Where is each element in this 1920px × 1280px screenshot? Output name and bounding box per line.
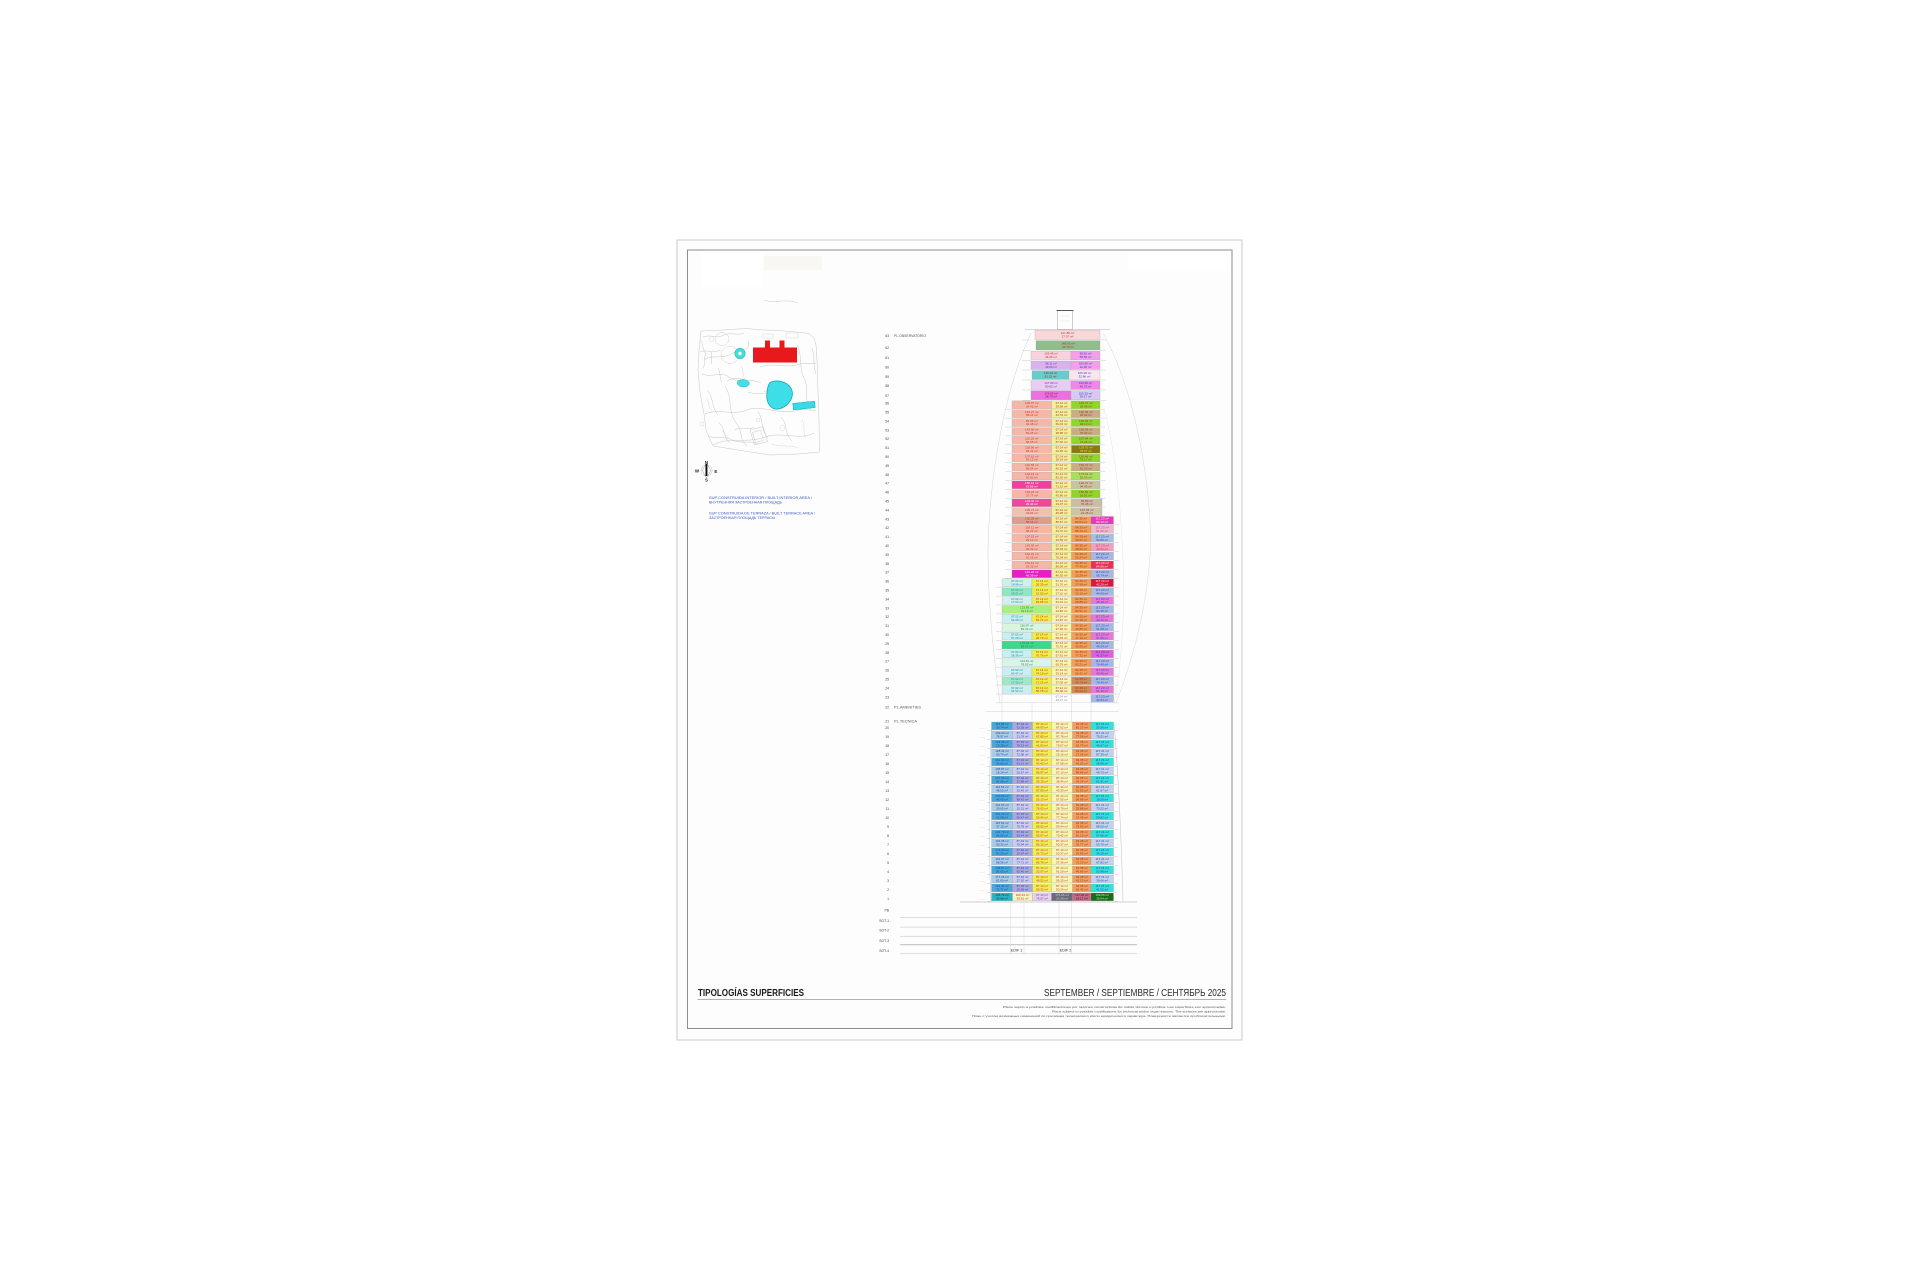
svg-text:PL.TECNICA: PL.TECNICA: [894, 719, 918, 723]
svg-text:67.14 m²20.39 m²: 67.14 m²20.39 m²: [1036, 579, 1048, 586]
svg-text:27: 27: [885, 660, 889, 664]
svg-text:150.50 m²16.81 m²: 150.50 m²16.81 m²: [1079, 490, 1093, 497]
svg-text:67.14 m²70.24 m²: 67.14 m²70.24 m²: [1056, 552, 1068, 559]
svg-text:117.04 m²18.17 m²: 117.04 m²18.17 m²: [1075, 893, 1088, 900]
svg-text:SOT-1: SOT-1: [879, 919, 889, 923]
svg-text:3: 3: [887, 879, 889, 883]
svg-text:EDIF 1: EDIF 1: [1011, 948, 1023, 952]
svg-text:87.14 m²24.73 m²: 87.14 m²24.73 m²: [1036, 848, 1048, 855]
svg-text:SOT-2: SOT-2: [879, 929, 889, 933]
svg-text:67.14 m²24.37 m²: 67.14 m²24.37 m²: [1056, 499, 1068, 506]
svg-text:67.14 m²58.45 m²: 67.14 m²58.45 m²: [1056, 632, 1068, 639]
svg-text:56: 56: [885, 402, 889, 406]
svg-text:94.35 m²23.28 m²: 94.35 m²23.28 m²: [1075, 570, 1087, 577]
svg-text:117.21 m²49.70 m²: 117.21 m²49.70 m²: [1096, 767, 1109, 774]
svg-text:129.70 m²75.57 m²: 129.70 m²75.57 m²: [1079, 445, 1093, 452]
svg-text:132.28 m²58.96 m²: 132.28 m²58.96 m²: [1025, 517, 1039, 524]
svg-text:176.03 m²18.73 m²: 176.03 m²18.73 m²: [1044, 391, 1058, 398]
svg-text:45: 45: [885, 500, 889, 504]
svg-text:117.23 m²65.74 m²: 117.23 m²65.74 m²: [1096, 570, 1109, 577]
svg-text:46: 46: [885, 491, 889, 495]
svg-text:52: 52: [885, 437, 889, 441]
svg-text:87.14 m²87.02 m²: 87.14 m²87.02 m²: [1056, 722, 1068, 729]
svg-text:SEPTEMBER / SEPTIEMBRE / СЕНТЯ: SEPTEMBER / SEPTIEMBRE / СЕНТЯБРЬ 2025: [1044, 988, 1226, 999]
svg-text:67.14 m²78.07 m²: 67.14 m²78.07 m²: [1036, 893, 1048, 900]
svg-text:99.81 m²55.59 m²: 99.81 m²55.59 m²: [1080, 352, 1092, 359]
svg-text:97.02 m²52.28 m²: 97.02 m²52.28 m²: [1011, 615, 1023, 622]
svg-text:67.14 m²71.12 m²: 67.14 m²71.12 m²: [1056, 481, 1068, 488]
svg-text:14: 14: [885, 780, 889, 784]
svg-text:87.14 m²79.07 m²: 87.14 m²79.07 m²: [1056, 740, 1068, 747]
svg-text:16: 16: [885, 762, 889, 766]
svg-text:117.21 m²58.89 m²: 117.21 m²58.89 m²: [1096, 758, 1109, 765]
svg-text:173.41 m²52.93 m²: 173.41 m²52.93 m²: [1079, 472, 1093, 479]
svg-text:39: 39: [885, 553, 889, 557]
svg-text:87.14 m²59.32 m²: 87.14 m²59.32 m²: [1036, 884, 1048, 891]
svg-text:87.14 m²43.30 m²: 87.14 m²43.30 m²: [1056, 785, 1068, 792]
svg-text:67.14 m²57.02 m²: 67.14 m²57.02 m²: [1056, 437, 1068, 444]
svg-text:117.21 m²73.02 m²: 117.21 m²73.02 m²: [1096, 803, 1109, 810]
svg-text:53: 53: [885, 428, 889, 432]
svg-text:87.34 m²31.88 m²: 87.34 m²31.88 m²: [1017, 776, 1029, 783]
svg-text:87.14 m²27.36 m²: 87.14 m²27.36 m²: [1056, 857, 1068, 864]
svg-text:61: 61: [885, 356, 889, 360]
svg-text:94.35 m²56.24 m²: 94.35 m²56.24 m²: [1075, 552, 1087, 559]
svg-text:150.46 m²76.17 m²: 150.46 m²76.17 m²: [1079, 454, 1093, 461]
svg-text:105.28 m²32.86 m²: 105.28 m²32.86 m²: [1078, 371, 1092, 378]
svg-text:87.14 m²38.44 m²: 87.14 m²38.44 m²: [1056, 776, 1068, 783]
svg-text:67.14 m²18.14 m²: 67.14 m²18.14 m²: [1056, 454, 1068, 461]
svg-text:87.14 m²66.97 m²: 87.14 m²66.97 m²: [1036, 767, 1048, 774]
svg-text:11: 11: [885, 807, 889, 811]
svg-text:141.19 m²41.08 m²: 141.19 m²41.08 m²: [995, 812, 1009, 819]
svg-text:98.11 m²49.69 m²: 98.11 m²49.69 m²: [1045, 361, 1057, 368]
svg-text:173.29 m²82.20 m²: 173.29 m²82.20 m²: [995, 848, 1009, 855]
svg-text:117.21 m²53.98 m²: 117.21 m²53.98 m²: [1096, 866, 1109, 873]
svg-text:97.02 m²80.47 m²: 97.02 m²80.47 m²: [1011, 668, 1023, 675]
svg-text:130.49 m²40.13 m²: 130.49 m²40.13 m²: [1079, 419, 1093, 426]
svg-text:106.87 m²85.63 m²: 106.87 m²85.63 m²: [995, 866, 1009, 873]
svg-text:133.32 m²28.44 m²: 133.32 m²28.44 m²: [1025, 499, 1039, 506]
svg-text:87.14 m²49.52 m²: 87.14 m²49.52 m²: [1036, 875, 1048, 882]
svg-text:23: 23: [885, 695, 889, 699]
svg-text:67.14 m²39.68 m²: 67.14 m²39.68 m²: [1056, 401, 1068, 408]
svg-text:67.14 m²31.70 m²: 67.14 m²31.70 m²: [1056, 579, 1068, 586]
svg-text:55: 55: [885, 411, 889, 415]
svg-text:67.14 m²89.96 m²: 67.14 m²89.96 m²: [1056, 686, 1068, 693]
svg-text:97.02 m²91.52 m²: 97.02 m²91.52 m²: [1011, 686, 1023, 693]
svg-text:E: E: [714, 469, 717, 474]
svg-text:87.14 m²41.60 m²: 87.14 m²41.60 m²: [1036, 740, 1048, 747]
svg-text:87.14 m²50.37 m²: 87.14 m²50.37 m²: [1056, 848, 1068, 855]
svg-text:7: 7: [887, 843, 889, 847]
svg-text:146.79 m²55.98 m²: 146.79 m²55.98 m²: [995, 893, 1009, 900]
svg-text:142.56 m²85.04 m²: 142.56 m²85.04 m²: [1025, 463, 1039, 470]
svg-text:67.14 m²27.92 m²: 67.14 m²27.92 m²: [1056, 624, 1068, 631]
svg-text:63: 63: [885, 334, 889, 338]
svg-text:87.14 m²90.37 m²: 87.14 m²90.37 m²: [1056, 839, 1068, 846]
svg-text:87.14 m²55.13 m²: 87.14 m²55.13 m²: [1036, 794, 1048, 801]
svg-text:87.34 m²78.13 m²: 87.34 m²78.13 m²: [1017, 740, 1029, 747]
svg-text:67.14 m²33.56 m²: 67.14 m²33.56 m²: [1056, 535, 1068, 542]
svg-text:47: 47: [885, 482, 889, 486]
svg-text:167.33 m²21.45 m²: 167.33 m²21.45 m²: [1080, 508, 1094, 515]
svg-text:67.14 m²15.02 m²: 67.14 m²15.02 m²: [1036, 588, 1048, 595]
svg-text:67.14 m²37.35 m²: 67.14 m²37.35 m²: [1056, 677, 1068, 684]
svg-text:43: 43: [885, 517, 889, 521]
svg-text:94.35 m²77.32 m²: 94.35 m²77.32 m²: [1075, 650, 1087, 657]
svg-text:100.80 m²22.26 m²: 100.80 m²22.26 m²: [1079, 361, 1093, 368]
svg-text:20: 20: [885, 726, 889, 730]
svg-text:117.21 m²61.91 m²: 117.21 m²61.91 m²: [1096, 776, 1109, 783]
svg-text:117.23 m²42.41 m²: 117.23 m²42.41 m²: [1096, 615, 1109, 622]
svg-text:113.51 m²79.92 m²: 113.51 m²79.92 m²: [1020, 659, 1033, 666]
svg-text:87.14 m²59.44 m²: 87.14 m²59.44 m²: [1036, 812, 1048, 819]
svg-text:87.34 m²16.56 m²: 87.34 m²16.56 m²: [1017, 884, 1029, 891]
svg-text:67.14 m²27.10 m²: 67.14 m²27.10 m²: [1056, 588, 1068, 595]
svg-text:87.34 m²25.97 m²: 87.34 m²25.97 m²: [1017, 848, 1029, 855]
svg-text:94.38 m²16.45 m²: 94.38 m²16.45 m²: [1076, 884, 1088, 891]
svg-text:150.12 m²19.85 m²: 150.12 m²19.85 m²: [1025, 481, 1039, 488]
svg-text:123.83 m²44.13 m²: 123.83 m²44.13 m²: [1020, 606, 1034, 613]
svg-text:117.23 m²91.62 m²: 117.23 m²91.62 m²: [1096, 526, 1109, 533]
svg-text:87.34 m²25.49 m²: 87.34 m²25.49 m²: [1017, 785, 1029, 792]
svg-text:87.34 m²81.12 m²: 87.34 m²81.12 m²: [1017, 758, 1029, 765]
svg-text:97.02 m²17.32 m²: 97.02 m²17.32 m²: [1011, 677, 1023, 684]
svg-text:60: 60: [885, 366, 889, 370]
svg-text:22: 22: [885, 705, 889, 709]
svg-text:94.38 m²43.03 m²: 94.38 m²43.03 m²: [1076, 758, 1088, 765]
svg-text:117.23 m²91.08 m²: 117.23 m²91.08 m²: [1096, 624, 1109, 631]
svg-text:87.34 m²77.71 m²: 87.34 m²77.71 m²: [1017, 857, 1029, 864]
svg-text:94.38 m²75.80 m²: 94.38 m²75.80 m²: [1076, 821, 1088, 828]
svg-text:131.53 m²29.65 m²: 131.53 m²29.65 m²: [995, 803, 1009, 810]
svg-text:34: 34: [885, 597, 889, 601]
svg-text:117.21 m²59.76 m²: 117.21 m²59.76 m²: [1096, 839, 1109, 846]
svg-text:67.14 m²85.67 m²: 67.14 m²85.67 m²: [1056, 517, 1068, 524]
svg-text:117.21 m²59.82 m²: 117.21 m²59.82 m²: [1096, 812, 1109, 819]
svg-text:159.66 m²36.64 m²: 159.66 m²36.64 m²: [1095, 893, 1109, 900]
svg-text:143.90 m²36.02 m²: 143.90 m²36.02 m²: [1025, 543, 1039, 550]
svg-text:67.14 m²45.86 m²: 67.14 m²45.86 m²: [1056, 490, 1068, 497]
svg-text:94.38 m²92.73 m²: 94.38 m²92.73 m²: [1076, 740, 1088, 747]
svg-text:97.02 m²19.98 m²: 97.02 m²19.98 m²: [1011, 579, 1023, 586]
svg-text:121.44 m²72.77 m²: 121.44 m²72.77 m²: [995, 884, 1009, 891]
svg-text:152.71 m²62.55 m²: 152.71 m²62.55 m²: [1079, 463, 1093, 470]
svg-text:87.14 m²87.80 m²: 87.14 m²87.80 m²: [1036, 785, 1048, 792]
svg-text:SOT-4: SOT-4: [879, 949, 889, 953]
svg-text:94.38 m²35.77 m²: 94.38 m²35.77 m²: [1076, 839, 1088, 846]
svg-text:42: 42: [885, 526, 889, 530]
svg-text:143.13 m²51.50 m²: 143.13 m²51.50 m²: [1025, 472, 1039, 479]
svg-text:87.34 m²27.92 m²: 87.34 m²27.92 m²: [1017, 875, 1029, 882]
svg-text:170.06 m²48.65 m²: 170.06 m²48.65 m²: [995, 794, 1009, 801]
svg-text:2: 2: [887, 888, 889, 892]
svg-text:Plans subject to possible modi: Plans subject to possible modifications …: [1052, 1010, 1226, 1014]
svg-text:94.38 m²42.13 m²: 94.38 m²42.13 m²: [1076, 875, 1088, 882]
svg-text:67.14 m²64.13 m²: 67.14 m²64.13 m²: [1056, 597, 1068, 604]
svg-text:87.14 m²57.13 m²: 87.14 m²57.13 m²: [1056, 767, 1068, 774]
svg-text:94.38 m²34.24 m²: 94.38 m²34.24 m²: [1076, 776, 1088, 783]
svg-text:67.14 m²46.28 m²: 67.14 m²46.28 m²: [1056, 508, 1068, 515]
svg-text:12: 12: [885, 798, 889, 802]
svg-text:87.14 m²77.74 m²: 87.14 m²77.74 m²: [1056, 812, 1068, 819]
svg-text:107.53 m²29.10 m²: 107.53 m²29.10 m²: [1025, 535, 1039, 542]
svg-text:94.38 m²89.69 m²: 94.38 m²89.69 m²: [1076, 767, 1088, 774]
svg-text:37: 37: [885, 571, 889, 575]
svg-text:87.14 m²35.15 m²: 87.14 m²35.15 m²: [1036, 776, 1048, 783]
svg-text:117.21 m²41.52 m²: 117.21 m²41.52 m²: [1096, 884, 1109, 891]
svg-text:41: 41: [885, 535, 889, 539]
svg-text:148.71 m²94.45 m²: 148.71 m²94.45 m²: [1079, 481, 1093, 488]
svg-text:87.34 m²92.40 m²: 87.34 m²92.40 m²: [1017, 866, 1029, 873]
svg-text:117.23 m²57.25 m²: 117.23 m²57.25 m²: [1096, 632, 1109, 639]
svg-text:44: 44: [885, 508, 889, 512]
svg-text:67.14 m²53.71 m²: 67.14 m²53.71 m²: [1036, 615, 1048, 622]
svg-text:117.21 m²46.67 m²: 117.21 m²46.67 m²: [1096, 740, 1109, 747]
svg-text:87.34 m²21.78 m²: 87.34 m²21.78 m²: [1017, 731, 1029, 738]
svg-text:87.14 m²86.76 m²: 87.14 m²86.76 m²: [1036, 857, 1048, 864]
svg-text:94.35 m²35.89 m²: 94.35 m²35.89 m²: [1075, 641, 1087, 648]
svg-text:94.35 m²16.85 m²: 94.35 m²16.85 m²: [1075, 624, 1087, 631]
svg-text:EDIF 2: EDIF 2: [1060, 948, 1072, 952]
svg-text:13: 13: [885, 789, 889, 793]
svg-text:87.14 m²25.16 m²: 87.14 m²25.16 m²: [1056, 749, 1068, 756]
svg-text:117.23 m²32.64 m²: 117.23 m²32.64 m²: [1096, 695, 1109, 702]
svg-text:94.38 m²20.80 m²: 94.38 m²20.80 m²: [1076, 848, 1088, 855]
svg-text:161.94 m²26.69 m²: 161.94 m²26.69 m²: [995, 758, 1009, 765]
svg-text:117.21 m²88.00 m²: 117.21 m²88.00 m²: [1096, 821, 1109, 828]
svg-text:87.14 m²28.60 m²: 87.14 m²28.60 m²: [1036, 749, 1048, 756]
svg-text:118.11 m²48.22 m²: 118.11 m²48.22 m²: [1025, 526, 1038, 533]
svg-text:151.12 m²19.32 m²: 151.12 m²19.32 m²: [1025, 561, 1039, 568]
svg-text:87.34 m²92.67 m²: 87.34 m²92.67 m²: [1017, 767, 1029, 774]
svg-text:131.79 m²64.00 m²: 131.79 m²64.00 m²: [995, 830, 1009, 837]
svg-text:87.14 m²78.93 m²: 87.14 m²78.93 m²: [1036, 803, 1048, 810]
svg-text:67.14 m²69.43 m²: 67.14 m²69.43 m²: [1056, 419, 1068, 426]
svg-text:87.34 m²56.47 m²: 87.34 m²56.47 m²: [1017, 812, 1029, 819]
svg-text:117.23 m²84.12 m²: 117.23 m²84.12 m²: [1096, 517, 1109, 524]
svg-text:167.35 m²81.09 m²: 167.35 m²81.09 m²: [995, 776, 1009, 783]
svg-text:94.38 m²56.88 m²: 94.38 m²56.88 m²: [1076, 794, 1088, 801]
svg-text:117.23 m²64.41 m²: 117.23 m²64.41 m²: [1096, 552, 1109, 559]
svg-text:117.23 m²94.45 m²: 117.23 m²94.45 m²: [1096, 606, 1109, 613]
svg-text:161.22 m²46.39 m²: 161.22 m²46.39 m²: [1025, 570, 1039, 577]
svg-text:67.14 m²24.45 m²: 67.14 m²24.45 m²: [1056, 445, 1068, 452]
svg-text:117.23 m²44.09 m²: 117.23 m²44.09 m²: [1096, 588, 1109, 595]
svg-text:94.35 m²94.04 m²: 94.35 m²94.04 m²: [1075, 686, 1087, 693]
svg-text:117.23 m²41.37 m²: 117.23 m²41.37 m²: [1096, 650, 1109, 657]
svg-text:10: 10: [885, 816, 889, 820]
svg-text:117.23 m²43.45 m²: 117.23 m²43.45 m²: [1096, 668, 1109, 675]
svg-text:PL.OBSERVATORIO: PL.OBSERVATORIO: [894, 334, 926, 338]
svg-text:94.35 m²48.52 m²: 94.35 m²48.52 m²: [1075, 543, 1087, 550]
svg-text:94.35 m²35.73 m²: 94.35 m²35.73 m²: [1075, 677, 1087, 684]
svg-text:67.14 m²44.17 m²: 67.14 m²44.17 m²: [1056, 695, 1068, 702]
svg-text:67.14 m²38.98 m²: 67.14 m²38.98 m²: [1056, 428, 1068, 435]
svg-text:87.34 m²55.44 m²: 87.34 m²55.44 m²: [1017, 830, 1029, 837]
svg-text:SUP CONSTRUIDA INTERIOR / BUIL: SUP CONSTRUIDA INTERIOR / BUILT INTERIOR…: [709, 496, 812, 500]
svg-text:143.60 m²51.25 m²: 143.60 m²51.25 m²: [1025, 428, 1039, 435]
svg-text:94.35 m²26.88 m²: 94.35 m²26.88 m²: [1075, 597, 1087, 604]
svg-text:175.65 m²23.38 m²: 175.65 m²23.38 m²: [1055, 893, 1069, 900]
svg-text:SUP CONSTRUIDA DE TERRAZA / BU: SUP CONSTRUIDA DE TERRAZA / BUILT TERRAC…: [709, 512, 815, 516]
svg-text:18: 18: [885, 744, 889, 748]
svg-text:94.35 m²17.16 m²: 94.35 m²17.16 m²: [1075, 632, 1087, 639]
svg-text:134.68 m²29.28 m²: 134.68 m²29.28 m²: [995, 740, 1009, 747]
svg-text:94.38 m²72.29 m²: 94.38 m²72.29 m²: [1076, 857, 1088, 864]
svg-text:147.08 m²90.82 m²: 147.08 m²90.82 m²: [1044, 381, 1058, 388]
svg-text:97.02 m²17.04 m²: 97.02 m²17.04 m²: [1011, 597, 1023, 604]
svg-text:29: 29: [885, 642, 889, 646]
svg-text:163.22 m²37.77 m²: 163.22 m²37.77 m²: [1025, 490, 1039, 497]
svg-text:115.63 m²37.15 m²: 115.63 m²37.15 m²: [995, 821, 1008, 828]
svg-text:139.48 m²44.26 m²: 139.48 m²44.26 m²: [1044, 352, 1058, 359]
svg-text:87.14 m²55.97 m²: 87.14 m²55.97 m²: [1036, 830, 1048, 837]
svg-text:21: 21: [885, 719, 889, 723]
svg-text:117.23 m²79.49 m²: 117.23 m²79.49 m²: [1096, 659, 1109, 666]
svg-text:35: 35: [885, 589, 889, 593]
svg-text:67.14 m²50.78 m²: 67.14 m²50.78 m²: [1036, 686, 1048, 693]
svg-text:67.14 m²17.23 m²: 67.14 m²17.23 m²: [1036, 677, 1048, 684]
svg-text:160.93 m²70.92 m²: 160.93 m²70.92 m²: [1079, 428, 1093, 435]
svg-text:117.23 m²44.34 m²: 117.23 m²44.34 m²: [1096, 641, 1109, 648]
svg-text:PB: PB: [884, 909, 889, 913]
svg-text:94.35 m²23.18 m²: 94.35 m²23.18 m²: [1075, 615, 1087, 622]
svg-text:87.14 m²55.62 m²: 87.14 m²55.62 m²: [1036, 821, 1048, 828]
svg-text:140.46 m²20.02 m²: 140.46 m²20.02 m²: [1079, 410, 1093, 417]
svg-text:94.35 m²82.91 m²: 94.35 m²82.91 m²: [1075, 606, 1087, 613]
svg-text:87.14 m²87.78 m²: 87.14 m²87.78 m²: [1056, 731, 1068, 738]
svg-text:87.34 m²76.78 m²: 87.34 m²76.78 m²: [1017, 821, 1029, 828]
svg-text:134.68 m²90.32 m²: 134.68 m²90.32 m²: [995, 839, 1009, 846]
svg-text:17: 17: [885, 753, 889, 757]
svg-text:87.14 m²57.55 m²: 87.14 m²57.55 m²: [1056, 794, 1068, 801]
svg-text:87.14 m²32.57 m²: 87.14 m²32.57 m²: [1036, 866, 1048, 873]
svg-text:1: 1: [887, 897, 889, 901]
svg-text:67.14 m²84.95 m²: 67.14 m²84.95 m²: [1036, 597, 1048, 604]
svg-text:128.32 m²90.74 m²: 128.32 m²90.74 m²: [995, 749, 1009, 756]
svg-text:143.27 m²66.11 m²: 143.27 m²66.11 m²: [1025, 410, 1039, 417]
svg-text:167.64 m²73.36 m²: 167.64 m²73.36 m²: [1079, 437, 1093, 444]
svg-text:121.88 m²27.07 m²: 121.88 m²27.07 m²: [1061, 331, 1075, 338]
svg-text:116.53 m²48.52 m²: 116.53 m²48.52 m²: [995, 785, 1008, 792]
svg-text:67.14 m²43.70 m²: 67.14 m²43.70 m²: [1056, 526, 1068, 533]
svg-text:101.07 m²68.56 m²: 101.07 m²68.56 m²: [995, 857, 1009, 864]
svg-text:99.95 m²31.48 m²: 99.95 m²31.48 m²: [1026, 419, 1038, 426]
svg-text:106.97 m²24.42 m²: 106.97 m²24.42 m²: [1025, 401, 1039, 408]
svg-text:94.35 m²77.40 m²: 94.35 m²77.40 m²: [1075, 561, 1087, 568]
svg-text:57: 57: [885, 394, 889, 398]
svg-text:38: 38: [885, 562, 889, 566]
svg-text:117.23 m²42.20 m²: 117.23 m²42.20 m²: [1096, 579, 1109, 586]
svg-text:117.21 m²57.66 m²: 117.21 m²57.66 m²: [1096, 830, 1109, 837]
svg-text:117.21 m²87.39 m²: 117.21 m²87.39 m²: [1096, 749, 1109, 756]
svg-text:25: 25: [885, 678, 889, 682]
svg-text:87.14 m²28.79 m²: 87.14 m²28.79 m²: [1056, 803, 1068, 810]
svg-text:94.38 m²27.09 m²: 94.38 m²27.09 m²: [1076, 749, 1088, 756]
svg-text:94.38 m²51.19 m²: 94.38 m²51.19 m²: [1076, 830, 1088, 837]
svg-text:87.14 m²56.25 m²: 87.14 m²56.25 m²: [1056, 875, 1068, 882]
svg-text:117.23 m²53.80 m²: 117.23 m²53.80 m²: [1096, 535, 1109, 542]
svg-text:36: 36: [885, 580, 889, 584]
svg-text:54: 54: [885, 419, 889, 423]
svg-text:58: 58: [885, 384, 889, 388]
svg-text:118.90 m²93.41 m²: 118.90 m²93.41 m²: [1025, 445, 1038, 452]
svg-text:94.35 m²23.12 m²: 94.35 m²23.12 m²: [1075, 588, 1087, 595]
svg-text:117.21 m²61.67 m²: 117.21 m²61.67 m²: [1096, 785, 1109, 792]
svg-text:117.21 m²53.36 m²: 117.21 m²53.36 m²: [1096, 722, 1109, 729]
svg-text:67.14 m²15.33 m²: 67.14 m²15.33 m²: [1056, 543, 1068, 550]
svg-text:40: 40: [885, 544, 889, 548]
svg-text:87.34 m²15.31 m²: 87.34 m²15.31 m²: [1017, 803, 1029, 810]
svg-text:87.14 m²64.93 m²: 87.14 m²64.93 m²: [1036, 722, 1048, 729]
svg-text:28: 28: [885, 651, 889, 655]
svg-text:5: 5: [887, 861, 889, 865]
svg-text:117.21 m²16.50 m²: 117.21 m²16.50 m²: [1096, 794, 1109, 801]
svg-text:87.14 m²91.20 m²: 87.14 m²91.20 m²: [1056, 866, 1068, 873]
svg-text:94.38 m²23.49 m²: 94.38 m²23.49 m²: [1076, 812, 1088, 819]
svg-text:149.20 m²78.97 m²: 149.20 m²78.97 m²: [995, 731, 1009, 738]
svg-text:30: 30: [885, 633, 889, 637]
svg-text:94.38 m²51.65 m²: 94.38 m²51.65 m²: [1076, 785, 1088, 792]
svg-text:26: 26: [885, 669, 889, 673]
svg-text:67.14 m²70.70 m²: 67.14 m²70.70 m²: [1056, 641, 1068, 648]
svg-text:9: 9: [887, 825, 889, 829]
svg-text:87.14 m²50.24 m²: 87.14 m²50.24 m²: [1056, 884, 1068, 891]
svg-text:87.14 m²70.42 m²: 87.14 m²70.42 m²: [1056, 830, 1068, 837]
svg-text:117.21 m²34.25 m²: 117.21 m²34.25 m²: [1096, 848, 1109, 855]
svg-text:67.14 m²26.73 m²: 67.14 m²26.73 m²: [1036, 632, 1048, 639]
svg-text:99.89 m²76.46 m²: 99.89 m²76.46 m²: [1081, 499, 1093, 506]
svg-text:87.14 m²59.94 m²: 87.14 m²59.94 m²: [1056, 821, 1068, 828]
svg-text:87.14 m²85.12 m²: 87.14 m²85.12 m²: [1036, 839, 1048, 846]
svg-text:TIPOLOGÍAS SUPERFICIES: TIPOLOGÍAS SUPERFICIES: [698, 986, 804, 999]
svg-text:4: 4: [887, 870, 889, 874]
svg-text:115.26 m²60.95 m²: 115.26 m²60.95 m²: [1025, 437, 1038, 444]
svg-text:67.14 m²21.87 m²: 67.14 m²21.87 m²: [1056, 615, 1068, 622]
svg-text:67.14 m²93.79 m²: 67.14 m²93.79 m²: [1056, 659, 1068, 666]
svg-text:50: 50: [885, 455, 889, 459]
svg-text:Plano sujeto a posibles modifi: Plano sujeto a posibles modificaciones p…: [1003, 1005, 1226, 1009]
svg-text:67.14 m²86.96 m²: 67.14 m²86.96 m²: [1056, 561, 1068, 568]
svg-text:94.35 m²80.54 m²: 94.35 m²80.54 m²: [1075, 517, 1087, 524]
svg-text:94.38 m²46.86 m²: 94.38 m²46.86 m²: [1076, 866, 1088, 873]
svg-text:67.14 m²76.76 m²: 67.14 m²76.76 m²: [1036, 650, 1048, 657]
svg-text:117.23 m²84.96 m²: 117.23 m²84.96 m²: [1096, 561, 1109, 568]
svg-text:162.74 m²29.46 m²: 162.74 m²29.46 m²: [1079, 401, 1093, 408]
svg-text:117.21 m²30.66 m²: 117.21 m²30.66 m²: [1096, 875, 1109, 882]
svg-text:107.61 m²54.12 m²: 107.61 m²54.12 m²: [1025, 454, 1039, 461]
svg-text:166.25 m²38.17 m²: 166.25 m²38.17 m²: [1079, 391, 1093, 398]
svg-text:176.22 m²84.07 m²: 176.22 m²84.07 m²: [1020, 641, 1034, 648]
svg-text:94.35 m²83.21 m²: 94.35 m²83.21 m²: [1075, 659, 1087, 666]
svg-text:87.34 m²88.42 m²: 87.34 m²88.42 m²: [1017, 794, 1029, 801]
svg-text:94.35 m²85.74 m²: 94.35 m²85.74 m²: [1075, 526, 1087, 533]
svg-text:87.14 m²67.58 m²: 87.14 m²67.58 m²: [1056, 758, 1068, 765]
svg-text:105.87 m²16.14 m²: 105.87 m²16.14 m²: [995, 767, 1009, 774]
svg-text:8: 8: [887, 834, 889, 838]
svg-text:План с учетом возможных измене: План с учетом возможных изменений по при…: [972, 1014, 1226, 1018]
svg-text:67.14 m²46.92 m²: 67.14 m²46.92 m²: [1056, 570, 1068, 577]
svg-text:94.35 m²33.67 m²: 94.35 m²33.67 m²: [1075, 535, 1087, 542]
svg-text:117.21 m²67.82 m²: 117.21 m²67.82 m²: [1096, 857, 1109, 864]
svg-text:130.24 m²81.15 m²: 130.24 m²81.15 m²: [1044, 371, 1058, 378]
svg-text:117.23 m²70.40 m²: 117.23 m²70.40 m²: [1096, 677, 1109, 684]
svg-text:67.14 m²33.14 m²: 67.14 m²33.14 m²: [1056, 668, 1068, 675]
svg-text:ЗАСТРОЕННАЯ ПЛОЩАДЬ ТЕРРАСЫ: ЗАСТРОЕННАЯ ПЛОЩАДЬ ТЕРРАСЫ: [709, 516, 775, 520]
svg-text:ВНУТРЕННЯЯ ЗАСТРОЕННАЯ ПЛОЩАД: ВНУТРЕННЯЯ ЗАСТРОЕННАЯ ПЛОЩАДЬ: [709, 500, 783, 504]
